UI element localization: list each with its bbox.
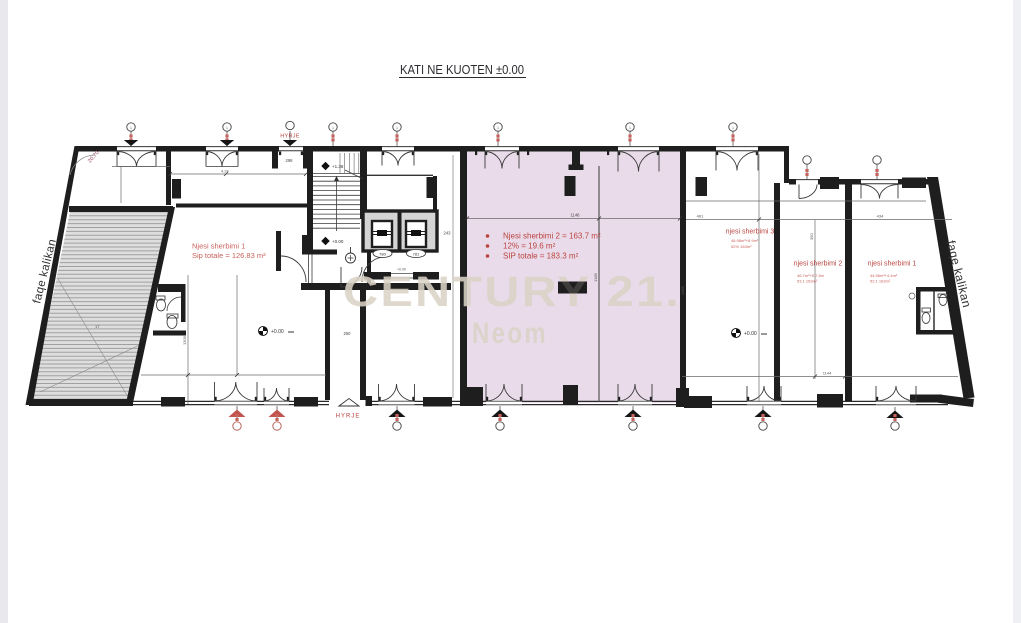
- svg-text:HYRJE: HYRJE: [336, 414, 361, 420]
- svg-text:1146: 1146: [570, 213, 580, 218]
- svg-text:njesi sherbimi 3: njesi sherbimi 3: [726, 229, 775, 236]
- svg-text:350: 350: [809, 233, 814, 240]
- svg-text:243: 243: [444, 231, 452, 236]
- svg-text:njesi sherbimi 2: njesi sherbimi 2: [794, 261, 843, 268]
- svg-text:Sip totale = 126.83 m²: Sip totale = 126.83 m²: [192, 251, 266, 260]
- svg-text:HYRJE: HYRJE: [280, 134, 300, 140]
- svg-text:12% = 19.6 m²: 12% = 19.6 m²: [503, 242, 556, 251]
- svg-text:+0.00: +0.00: [271, 329, 284, 335]
- svg-text:4.24: 4.24: [221, 169, 230, 174]
- svg-text:Neom: Neom: [472, 317, 548, 350]
- svg-text:KATI NE KUOTEN ±0.00: KATI NE KUOTEN ±0.00: [400, 62, 524, 77]
- svg-text:781: 781: [413, 252, 420, 257]
- svg-text:njesi sherbimi 1: njesi sherbimi 1: [868, 261, 917, 268]
- svg-text:17: 17: [95, 324, 100, 329]
- svg-text:46.7m³+5.7.5m: 46.7m³+5.7.5m: [797, 273, 825, 278]
- svg-text:461: 461: [697, 214, 704, 219]
- svg-text:SIP totale = 183.3 m²: SIP totale = 183.3 m²: [503, 252, 579, 261]
- svg-text:+1.38: +1.38: [332, 164, 344, 169]
- svg-text:+0.00: +0.00: [332, 239, 344, 244]
- svg-text:52.1 163m²: 52.1 163m²: [870, 279, 891, 284]
- svg-text:1144: 1144: [823, 371, 832, 376]
- svg-text:44.96m³+4.4m³: 44.96m³+4.4m³: [870, 273, 898, 278]
- svg-text:46.98m³+6.9m³: 46.98m³+6.9m³: [731, 238, 759, 243]
- svg-text:52% 163m²: 52% 163m²: [731, 244, 752, 249]
- svg-text:250: 250: [344, 331, 352, 336]
- svg-text:Njesi sherbimi 2 = 163.7 m²: Njesi sherbimi 2 = 163.7 m²: [503, 232, 601, 241]
- svg-text:298: 298: [286, 158, 294, 163]
- svg-text:780: 780: [379, 252, 386, 257]
- svg-text:434: 434: [877, 214, 884, 219]
- svg-text:53.1 163m²: 53.1 163m²: [797, 279, 818, 284]
- svg-text:Njesi sherbimi 1: Njesi sherbimi 1: [192, 242, 245, 251]
- svg-text:CENTURY 21.: CENTURY 21.: [343, 268, 681, 316]
- svg-text:1309: 1309: [182, 335, 187, 345]
- svg-text:+0.00: +0.00: [744, 331, 757, 337]
